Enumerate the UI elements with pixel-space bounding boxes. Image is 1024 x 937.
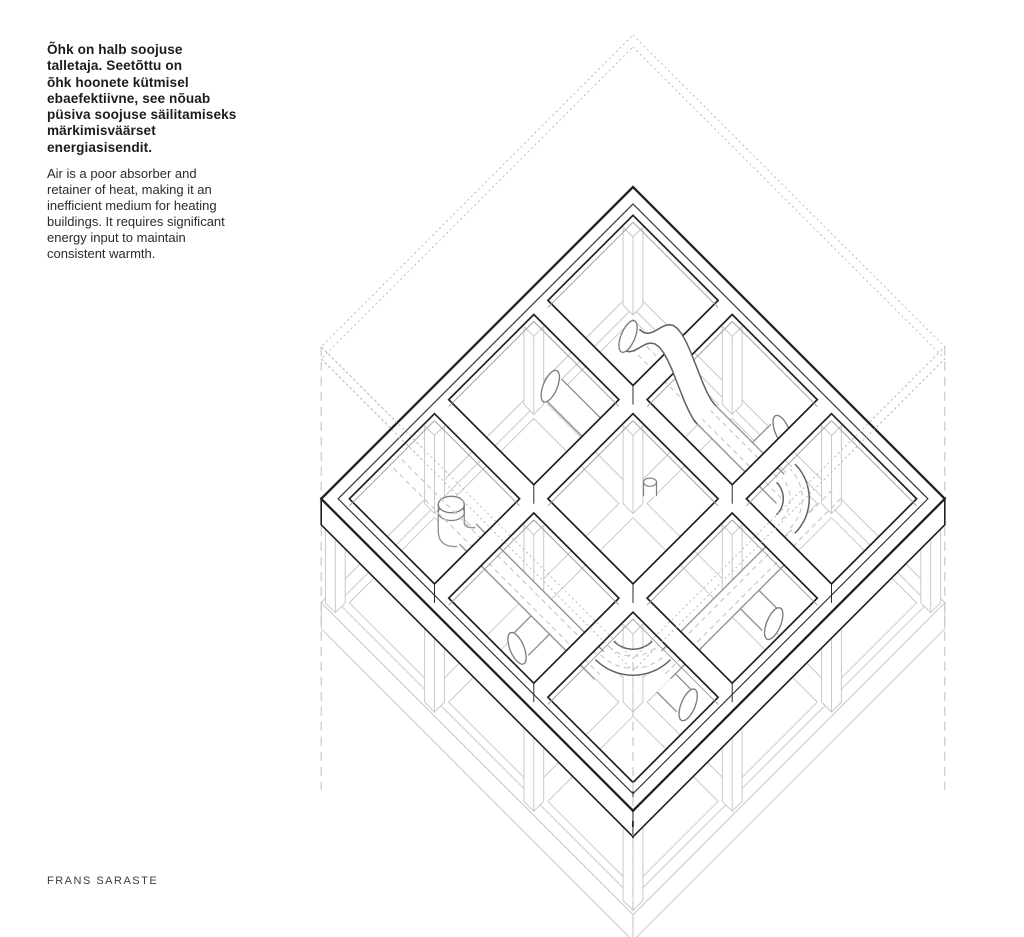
caption-block: Õhk on halb soojuse talletaja. Seetõttu … — [47, 42, 299, 262]
author-credit: FRANS SARASTE — [47, 875, 158, 887]
heading-estonian: Õhk on halb soojuse talletaja. Seetõttu … — [47, 42, 299, 156]
paragraph-english: Air is a poor absorber and retainer of h… — [47, 166, 299, 261]
poster-page: Õhk on halb soojuse talletaja. Seetõttu … — [0, 0, 1024, 937]
